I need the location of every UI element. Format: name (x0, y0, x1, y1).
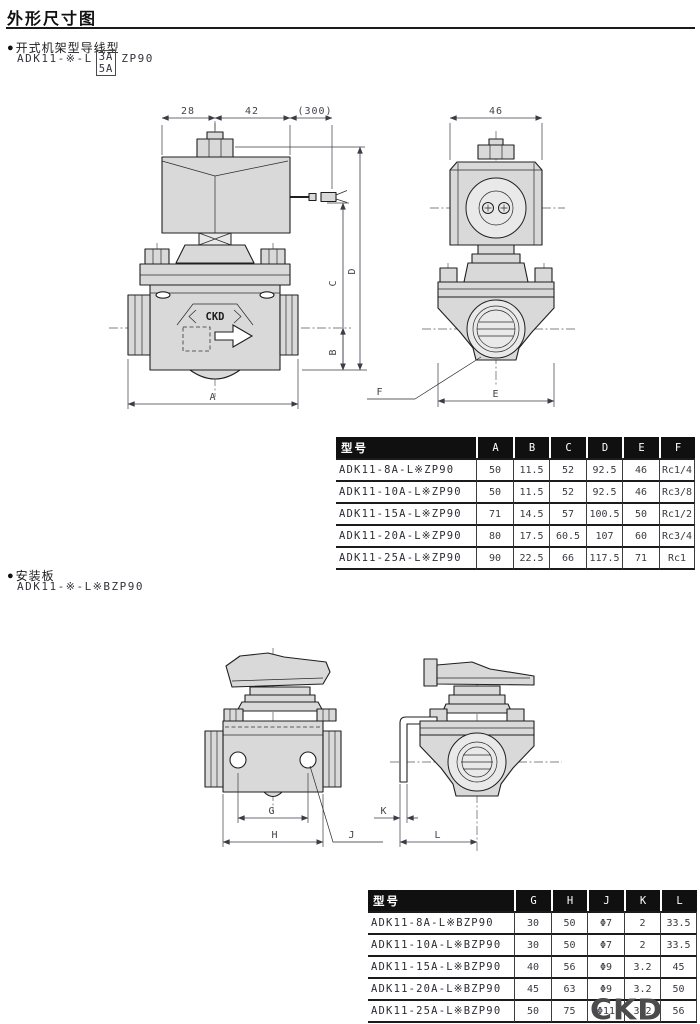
cell: 50 (514, 999, 551, 1023)
cell: Φ9 (587, 955, 624, 977)
page-title: 外形尺寸图 (7, 5, 97, 29)
cell: 92.5 (586, 480, 622, 502)
cell: 107 (586, 524, 622, 546)
cell: Rc1 (659, 546, 695, 570)
valve-body: CKD (128, 285, 298, 379)
table-header-row: 型号 G H J K L (368, 890, 697, 911)
valve-body (205, 721, 341, 797)
bonnet-assembly (224, 687, 336, 721)
col-header-model: 型号 (336, 437, 476, 458)
table-header-row: 型号 A B C D E F (336, 437, 695, 458)
cell: 50 (476, 480, 513, 502)
col-header-model: 型号 (368, 890, 514, 911)
cell: ADK11-15A-L※BZP90 (368, 955, 514, 977)
cell: 52 (549, 480, 586, 502)
cell: ADK11-10A-L※ZP90 (336, 480, 476, 502)
cell: 52 (549, 458, 586, 480)
cell: ADK11-8A-L※BZP90 (368, 911, 514, 933)
table-row: ADK11-8A-L※ZP90 50 11.5 52 92.5 46 Rc1/4 (336, 458, 695, 480)
table-row: ADK11-10A-L※BZP90 30 50 Φ7 2 33.5 (368, 933, 697, 955)
model-code: ADK11-※-L※BZP90 (17, 580, 144, 593)
col-header-e: E (622, 437, 659, 458)
dimension-table-zp90: 型号 A B C D E F ADK11-8A-L※ZP90 50 11.5 5… (336, 437, 695, 570)
dim-label-c: C (328, 279, 339, 286)
table-row: ADK11-15A-L※ZP90 71 14.5 57 100.5 50 Rc1… (336, 502, 695, 524)
cell: 46 (622, 458, 659, 480)
cell: 66 (549, 546, 586, 570)
cell: ADK11-25A-L※ZP90 (336, 546, 476, 570)
cell: 50 (660, 977, 697, 999)
cell: ADK11-20A-L※ZP90 (336, 524, 476, 546)
dim-label-j: J (348, 830, 355, 841)
cell: 11.5 (513, 458, 549, 480)
cell: ADK11-8A-L※ZP90 (336, 458, 476, 480)
cell: 45 (514, 977, 551, 999)
bracket-front-view-drawing: G H J (180, 640, 390, 860)
cell: 50 (551, 911, 587, 933)
cell: 71 (476, 502, 513, 524)
valve-body (438, 297, 554, 360)
cell: 46 (622, 480, 659, 502)
col-header-g: G (514, 890, 551, 911)
body-logo: CKD (206, 311, 225, 323)
cell: 22.5 (513, 546, 549, 570)
cell: 50 (551, 933, 587, 955)
cell: 57 (549, 502, 586, 524)
cell: 56 (551, 955, 587, 977)
valve-body (420, 721, 534, 796)
cell: ADK11-20A-L※BZP90 (368, 977, 514, 999)
section2-model-code: ADK11-※-L※BZP90 (17, 580, 144, 593)
cell: 80 (476, 524, 513, 546)
cell: Rc1/4 (659, 458, 695, 480)
cell: Φ7 (587, 911, 624, 933)
bottom-dimensions: E F (367, 357, 554, 407)
cell: 56 (660, 999, 697, 1023)
cell: ADK11-10A-L※BZP90 (368, 933, 514, 955)
cell: 71 (622, 546, 659, 570)
dim-28: 28 (181, 106, 195, 117)
cell: 60.5 (549, 524, 586, 546)
model-prefix: ADK11-※-L (17, 52, 93, 65)
cell: 100.5 (586, 502, 622, 524)
dim-label-f: F (376, 387, 383, 398)
section1-model-code: ADK11-※-L 3A 5A ZP90 (17, 52, 154, 76)
cell: 75 (551, 999, 587, 1023)
cell: 2 (624, 911, 660, 933)
col-header-a: A (476, 437, 513, 458)
dim-300: (300) (297, 106, 332, 117)
dim-label-d: D (347, 267, 358, 274)
cell: 30 (514, 933, 551, 955)
dim-label-a: A (209, 392, 216, 403)
ckd-brand-logo: CKD (590, 994, 663, 1024)
cell: Rc3/4 (659, 524, 695, 546)
dim-label-g: G (268, 806, 275, 817)
col-header-l: L (660, 890, 697, 911)
cell: Rc1/2 (659, 502, 695, 524)
dim-42: 42 (245, 106, 259, 117)
dim-label-k: K (380, 806, 387, 817)
cell: 63 (551, 977, 587, 999)
variant-5a: 5A (99, 63, 114, 75)
valve-side-view-drawing: 46 (360, 105, 680, 435)
cell: 92.5 (586, 458, 622, 480)
variant-option-box: 3A 5A (96, 50, 117, 76)
mounting-hole (230, 752, 246, 768)
table-row: ADK11-10A-L※ZP90 50 11.5 52 92.5 46 Rc3/… (336, 480, 695, 502)
model-suffix: ZP90 (121, 52, 154, 65)
cell: 33.5 (660, 911, 697, 933)
cell: ADK11-15A-L※ZP90 (336, 502, 476, 524)
bullet-icon: ● (7, 42, 15, 54)
cell: 2 (624, 933, 660, 955)
mounting-hole (300, 752, 316, 768)
cell: 50 (476, 458, 513, 480)
mounting-plate (226, 653, 330, 687)
cell: Rc3/8 (659, 480, 695, 502)
col-header-d: D (586, 437, 622, 458)
dim-label-h: H (271, 830, 278, 841)
dim-46: 46 (489, 106, 503, 117)
bullet-icon: ● (7, 570, 15, 582)
cell: 17.5 (513, 524, 549, 546)
variant-3a: 3A (99, 51, 114, 63)
coil-assembly (450, 139, 542, 245)
bracket-side-view-drawing: K L (360, 640, 600, 860)
bonnet-assembly (438, 245, 554, 297)
cell: 90 (476, 546, 513, 570)
col-header-k: K (624, 890, 660, 911)
cell: 117.5 (586, 546, 622, 570)
cell: 60 (622, 524, 659, 546)
cell: 45 (660, 955, 697, 977)
col-header-j: J (587, 890, 624, 911)
mounting-plate (424, 659, 534, 686)
cell: 50 (622, 502, 659, 524)
table-row: ADK11-15A-L※BZP90 40 56 Φ9 3.2 45 (368, 955, 697, 977)
cell: 33.5 (660, 933, 697, 955)
cell: 3.2 (624, 955, 660, 977)
dim-label-e: E (492, 389, 499, 400)
cell: 14.5 (513, 502, 549, 524)
col-header-h: H (551, 890, 587, 911)
table-row: ADK11-8A-L※BZP90 30 50 Φ7 2 33.5 (368, 911, 697, 933)
bonnet-assembly (140, 233, 290, 285)
table-row: ADK11-20A-L※ZP90 80 17.5 60.5 107 60 Rc3… (336, 524, 695, 546)
cell: ADK11-25A-L※BZP90 (368, 999, 514, 1023)
col-header-b: B (513, 437, 549, 458)
col-header-c: C (549, 437, 586, 458)
cell: 11.5 (513, 480, 549, 502)
datasheet-page: 外形尺寸图 ● 开式机架型导线型 ADK11-※-L 3A 5A ZP90 28 (0, 0, 700, 1024)
cell: 40 (514, 955, 551, 977)
col-header-f: F (659, 437, 695, 458)
dim-label-b: B (328, 348, 339, 355)
cell: Φ7 (587, 933, 624, 955)
valve-front-view-drawing: 28 42 (300) (95, 105, 395, 420)
cell: 30 (514, 911, 551, 933)
title-divider (6, 27, 695, 29)
table-row: ADK11-25A-L※ZP90 90 22.5 66 117.5 71 Rc1 (336, 546, 695, 570)
dim-label-l: L (434, 830, 441, 841)
